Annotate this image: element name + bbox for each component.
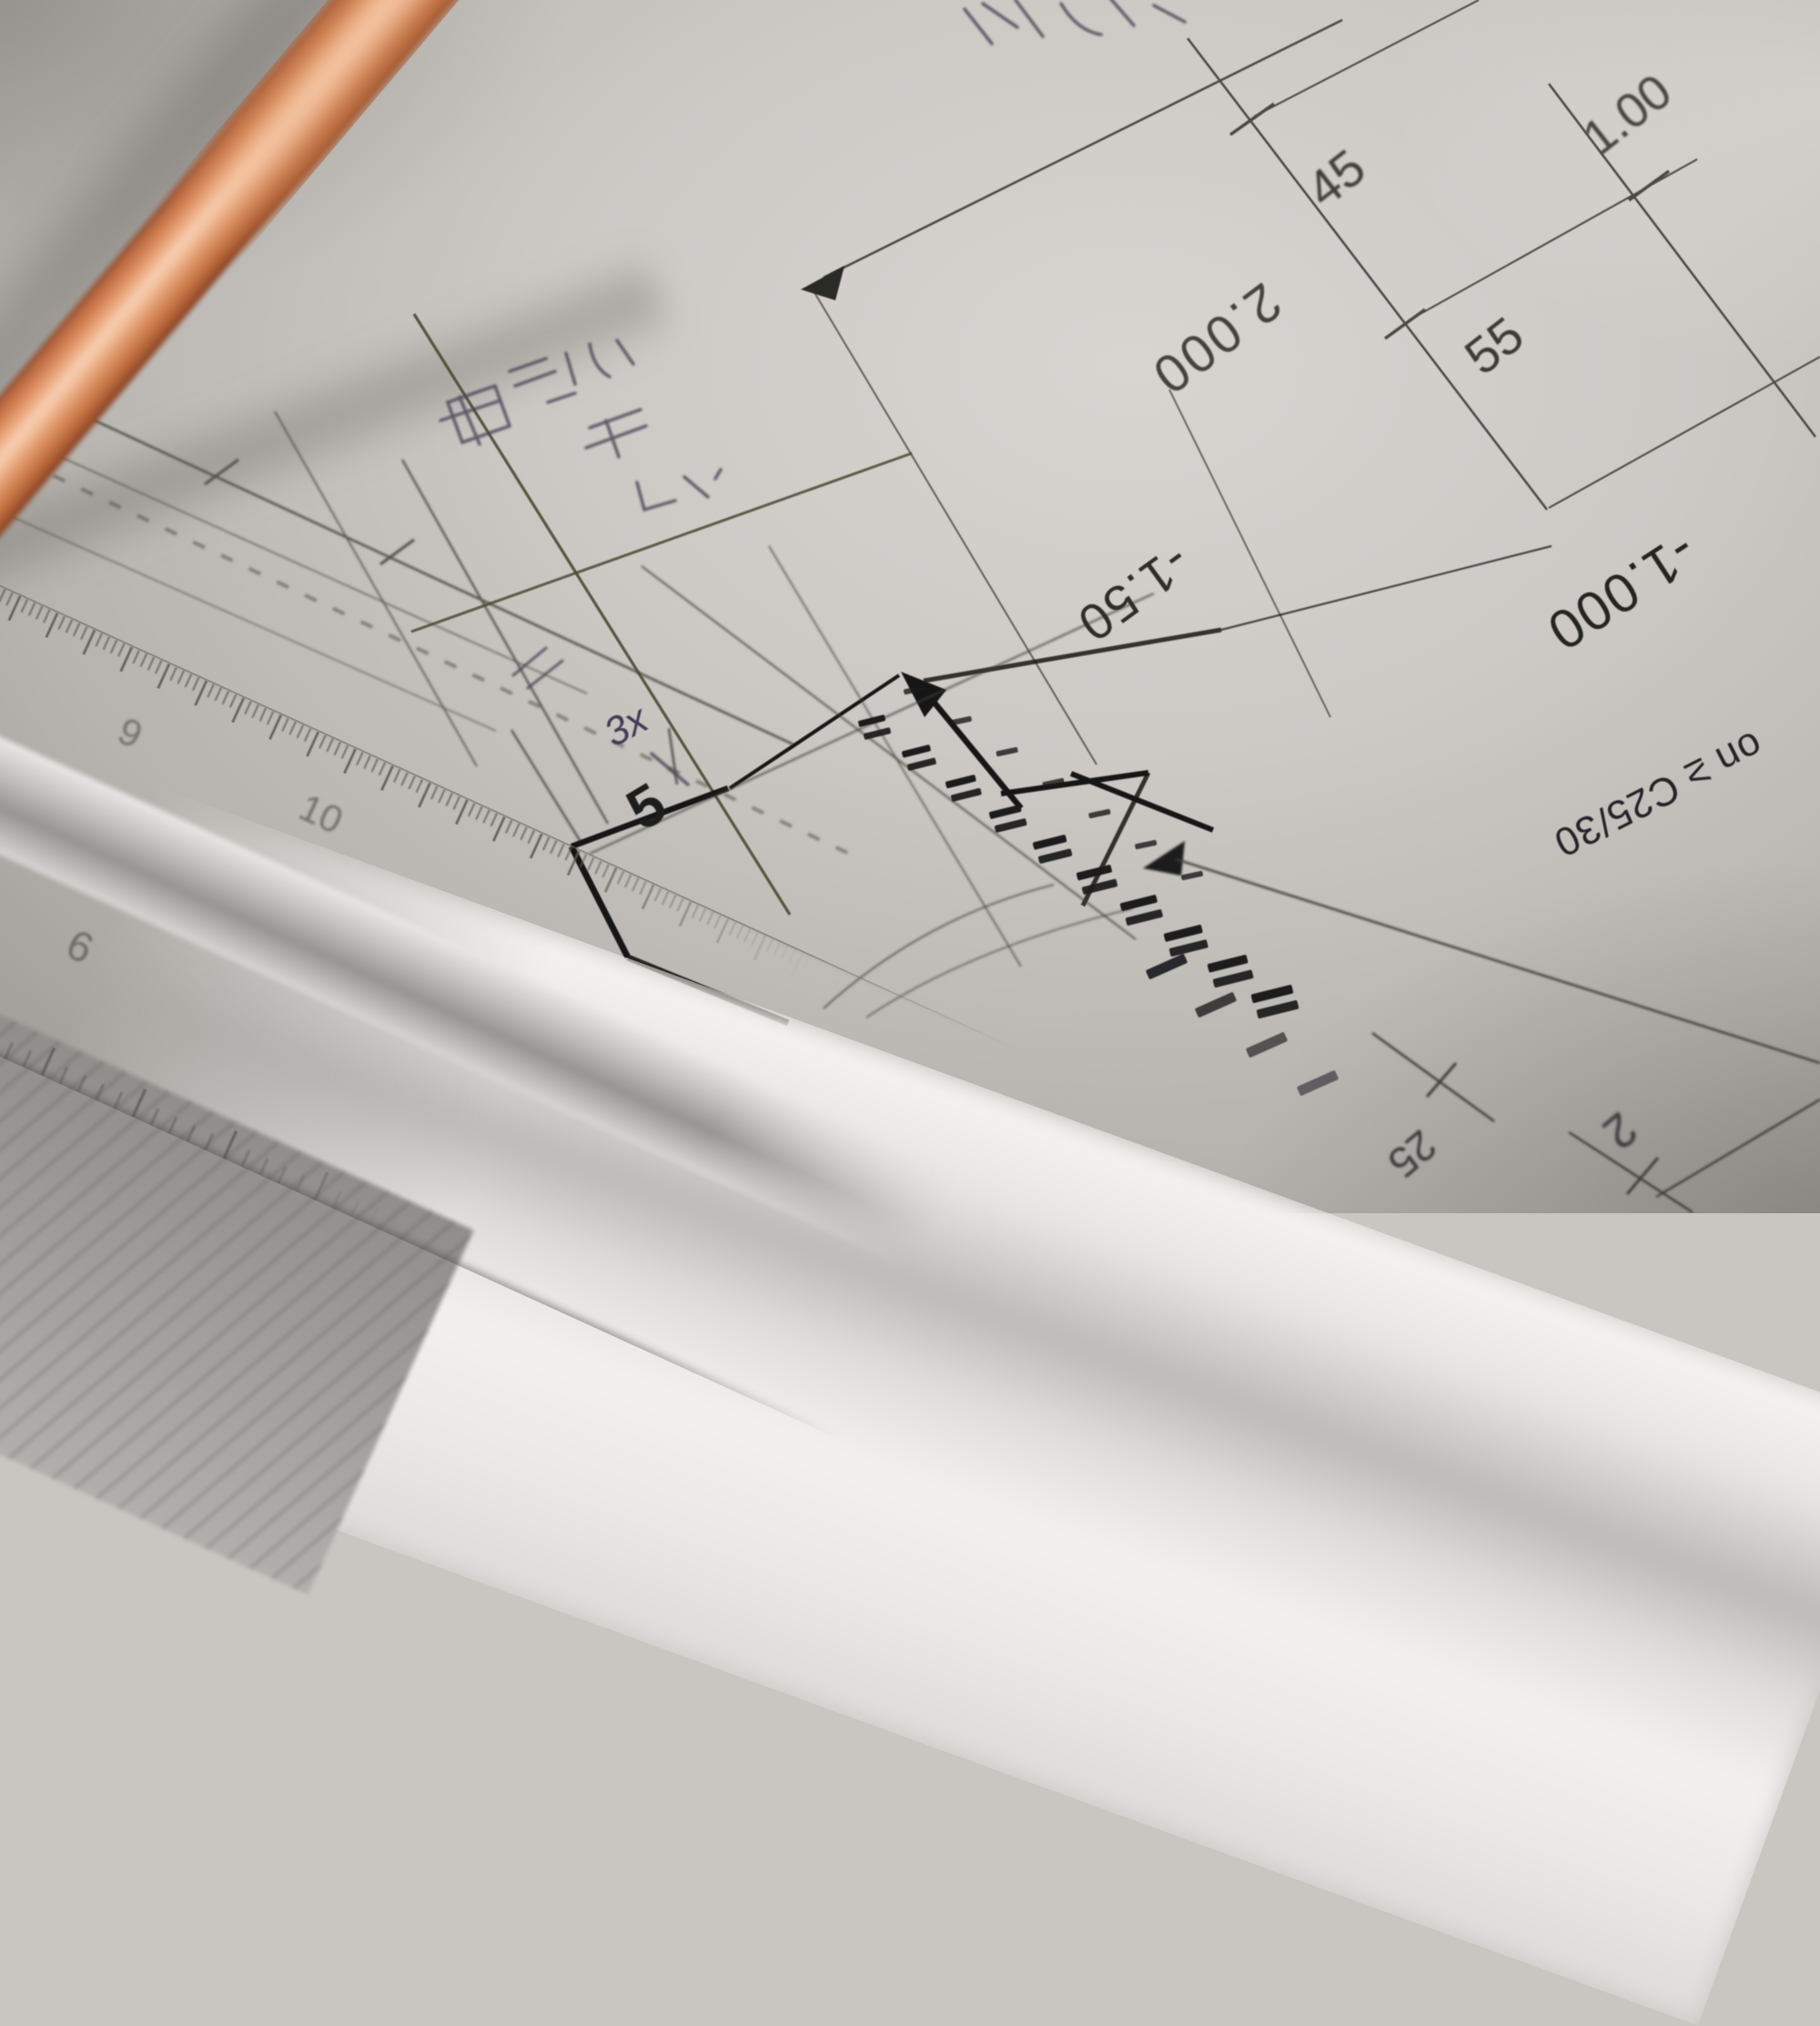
handwriting-scribbles — [440, 0, 1185, 785]
ruler-number-9: 9 — [113, 711, 148, 755]
ruler-number-10: 10 — [294, 787, 349, 840]
ruler-number-6: 6 — [61, 922, 99, 969]
dimension-arrowhead — [801, 266, 844, 300]
